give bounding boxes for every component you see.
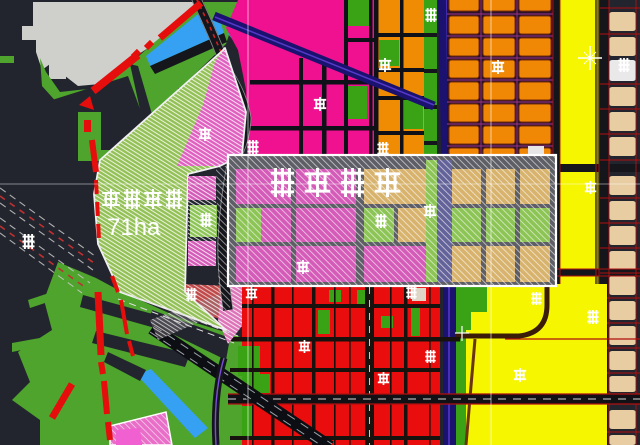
svg-text:71ha: 71ha <box>107 214 161 241</box>
